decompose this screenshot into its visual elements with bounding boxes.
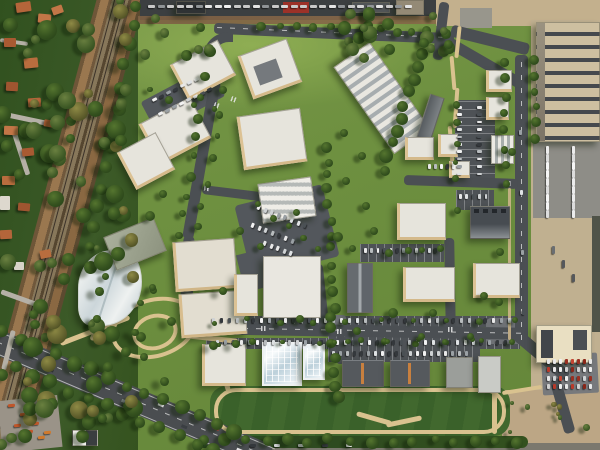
street-cars-south-car [304, 340, 307, 345]
woodland-canopy [3, 18, 17, 32]
east-road-trees [500, 58, 508, 66]
tree [296, 315, 304, 323]
north-strip-trucks-car [177, 5, 184, 8]
nw-slope-trees [181, 50, 192, 61]
field-divider-path [492, 390, 497, 434]
grid-cars-car [451, 351, 454, 356]
street-trees-s [345, 339, 351, 345]
south-treeline [325, 322, 336, 333]
north-strip-trucks-car [376, 5, 383, 8]
north-strip-trucks-car [234, 5, 241, 8]
woodland-canopy [111, 247, 124, 260]
mid-row-cars-car [428, 248, 431, 253]
plant-building-rooftop-units [470, 206, 510, 239]
nw-slope-trees [194, 45, 203, 54]
woodland-canopy [23, 337, 43, 357]
street-trees-n [212, 321, 217, 326]
south-road-cars-car [250, 444, 256, 447]
sw-lawn-trees [160, 377, 169, 386]
street-cars-south-car [392, 340, 395, 345]
ne-grove [382, 18, 394, 30]
central-treeline [321, 183, 332, 194]
street-cars-north-car [292, 318, 295, 323]
woodland-canopy [23, 48, 33, 58]
visitor-cars-3-car [559, 376, 562, 381]
lot-a-islands [212, 106, 218, 112]
street-cars-south-car [288, 340, 291, 345]
ne-lot-trees [453, 119, 460, 126]
grid-cars-car [444, 351, 447, 356]
woodland-canopy [108, 207, 120, 219]
avenue-trees-west [191, 132, 200, 141]
tree [495, 298, 503, 306]
ne-diagonal-treeline [380, 166, 390, 176]
woodland-canopy [26, 122, 43, 139]
street-cars-south-car [272, 340, 275, 345]
visitor-cars-1-car [571, 359, 574, 364]
east-row-cars-car [459, 194, 462, 199]
street-cars-south-car [488, 340, 491, 345]
street-cars-north-car [388, 318, 391, 323]
street-cars-north-car [468, 318, 471, 323]
highway-verge-north [175, 400, 190, 415]
sw-lawn-trees [103, 362, 113, 372]
hedge-trees [322, 433, 332, 443]
aerial-business-park-render [0, 0, 600, 450]
street-cars-north-car [364, 318, 367, 323]
street-cars-south-car [368, 340, 371, 345]
south-treeline [325, 312, 336, 323]
visitor-cars-1-car [577, 359, 580, 364]
north-strip-trucks-car [291, 5, 298, 8]
north-road-trees [393, 28, 402, 37]
visitor-cars-4-car [559, 384, 562, 389]
tree [353, 327, 361, 335]
tree [257, 243, 264, 250]
street-cars-north-car [348, 318, 351, 323]
street-cars-north-car [492, 318, 495, 323]
tree [358, 152, 366, 160]
railside-trees [96, 184, 107, 195]
woodland-canopy [47, 191, 64, 208]
street-trees-n [310, 320, 315, 325]
north-strip-trucks-car [196, 5, 203, 8]
grid-cars-car [353, 351, 356, 356]
tree [467, 333, 474, 340]
visitor-cars-3-car [553, 376, 556, 381]
house-roof [4, 126, 18, 135]
highway-verge-north [122, 382, 132, 392]
yard-trucks-2-car [572, 146, 575, 154]
highway-verge-south [206, 443, 220, 450]
boulevard-cars-car [520, 190, 523, 195]
grid-cars-car [416, 351, 419, 356]
tree [480, 292, 488, 300]
ne-diagonal-treeline [397, 101, 408, 112]
ne-lot-cars-2-car [477, 113, 482, 116]
street-cars-north-car [236, 318, 239, 323]
grid-cars-car [395, 351, 398, 356]
woodland-canopy [116, 98, 127, 109]
highway-verge-south [135, 417, 145, 427]
highway-verge-north [157, 393, 169, 405]
street-cars-north-car [284, 318, 287, 323]
visitor-cars-2-car [553, 367, 556, 372]
gate-grove [419, 38, 429, 48]
logistics-office [536, 325, 592, 363]
apron-trucks-car [562, 260, 565, 268]
ne-diagonal-treeline [379, 149, 392, 162]
complex-edge-trees [529, 55, 539, 65]
avenue-trees-east [219, 86, 227, 94]
north-strip-trucks-car [243, 5, 250, 8]
tree [362, 202, 370, 210]
south-road-cars-car [274, 444, 280, 447]
se-scrub [551, 402, 556, 407]
highway-verge-north [101, 370, 116, 385]
yard-trucks-1-car [546, 194, 549, 202]
street-cars-north-car [396, 318, 399, 323]
street-cars-south-car [496, 340, 499, 345]
gate-grove [440, 27, 448, 35]
tree [349, 245, 356, 252]
north-road-trees [408, 28, 415, 35]
logistics-mega-warehouse [536, 22, 600, 142]
unit-gray-light [478, 356, 501, 393]
ne-lot-cars-2-car [477, 128, 482, 131]
north-strip-trucks-car [224, 5, 231, 8]
woodland-canopy [70, 401, 88, 419]
street-cars-north-car [220, 318, 223, 323]
street-cars-north-car [228, 318, 231, 323]
courtyard-islands [270, 215, 277, 222]
office-mid-1 [397, 203, 446, 240]
north-strip-trucks-car [300, 5, 307, 8]
tree [429, 309, 437, 317]
visitor-cars-1-car [547, 359, 550, 364]
railside-trees [87, 221, 99, 233]
street-trees-s [317, 341, 322, 346]
truck-yard [533, 142, 600, 218]
woodland-canopy [42, 99, 53, 110]
house-roof [18, 202, 31, 211]
north-strip-trucks-car [338, 5, 345, 8]
avenue-trees-west [197, 94, 204, 101]
yard-trucks-1-car [546, 170, 549, 178]
yard-trucks-2-car [572, 186, 575, 194]
hedge-trees [366, 437, 379, 450]
avenue-trees-west [200, 72, 209, 81]
ne-grove [384, 44, 395, 55]
street-cars-south-car [352, 340, 355, 345]
woodland-canopy [127, 271, 139, 283]
street-cars-north-car [252, 318, 255, 323]
ne-diagonal-treeline [403, 85, 415, 97]
street-trees-s [249, 338, 256, 345]
sw-lawn-trees [95, 287, 104, 296]
north-strip-trucks-car [348, 5, 355, 8]
tree [388, 308, 398, 318]
gate-pavement [460, 8, 492, 28]
avenue-trees-west [186, 172, 196, 182]
house-roof [6, 82, 18, 92]
yard-trucks-2-car [572, 202, 575, 210]
fan-garden-trees [102, 273, 109, 280]
complex-edge-trees [529, 72, 539, 82]
gate-grove [444, 40, 453, 49]
visitor-cars-4-car [577, 384, 580, 389]
ne-lot-cars-1-car [457, 150, 462, 153]
yard-trucks-2-car [572, 178, 575, 186]
woodland-canopy [88, 101, 103, 116]
visitor-cars-2-car [571, 367, 574, 372]
mid-row-cars-car [415, 248, 418, 253]
street-cars-north-car [404, 318, 407, 323]
ne-lot-trees [453, 101, 461, 109]
tree [293, 209, 300, 216]
yard-trucks-2-car [572, 170, 575, 178]
sw-lawn-trees [121, 347, 131, 357]
grid-cars-car [437, 351, 440, 356]
south-treeline [328, 367, 339, 378]
visitor-cars-2-car [589, 367, 592, 372]
north-strip-trucks-car [148, 5, 155, 8]
north-road-trees [293, 22, 301, 30]
north-strip-trucks-car [262, 5, 269, 8]
highway-verge-north [139, 388, 149, 398]
east-road-trees [502, 161, 510, 169]
central-treeline [327, 262, 335, 270]
central-treeline [323, 170, 331, 178]
tree [236, 227, 244, 235]
visitor-cars-1-car [559, 359, 562, 364]
street-cars-south-car [504, 340, 507, 345]
ne-diagonal-treeline [396, 113, 408, 125]
central-treeline [321, 142, 332, 153]
grid-cars-car [409, 351, 412, 356]
north-strip-trucks-car [205, 5, 212, 8]
north-strip-trucks-car [357, 5, 364, 8]
north-strip-trucks-car [167, 5, 174, 8]
highway-verge-south [84, 393, 94, 403]
north-road-trees [256, 22, 265, 31]
woodland-canopy [115, 135, 127, 147]
apron-trucks-car [552, 246, 555, 254]
ne-row-cars-car [440, 164, 443, 169]
highway-verge-north [194, 409, 206, 421]
street-trees-s [280, 340, 285, 345]
hall-pitched-roof [347, 263, 373, 313]
east-row-cars-car [478, 194, 481, 199]
ne-lot-cars-2-car [477, 136, 482, 139]
tree [454, 207, 461, 214]
office-south-1 [202, 344, 246, 386]
highway-verge-south [10, 361, 21, 372]
grid-cars-car [367, 351, 370, 356]
courtyard-islands [286, 223, 292, 229]
lot-a-islands [191, 102, 197, 108]
visitor-cars-1-car [589, 359, 592, 364]
fan-garden-trees [137, 300, 144, 307]
visitor-cars-1-car [583, 359, 586, 364]
avenue-trees-east [205, 181, 211, 187]
visitor-cars-3-car [589, 376, 592, 381]
ne-lot-cars-1-car [457, 128, 462, 131]
ne-lot-cars-1-car [457, 113, 462, 116]
visitor-cars-3-car [577, 376, 580, 381]
street-cars-south-car [408, 340, 411, 345]
ne-lot-cars-1-car [457, 165, 462, 168]
se-scrub [525, 404, 530, 409]
street-cars-north-car [460, 318, 463, 323]
north-strip-trucks-car [329, 5, 336, 8]
street-trees-n [342, 319, 347, 324]
visitor-cars-4-car [583, 384, 586, 389]
ne-row-cars-car [446, 164, 449, 169]
house-roof [2, 176, 15, 185]
north-strip-trucks-car [272, 5, 279, 8]
visitor-cars-4-car [589, 384, 592, 389]
yard-trucks-2-car [572, 162, 575, 170]
workshop-gray [446, 357, 473, 388]
house-roof [22, 147, 35, 156]
visitor-cars-4-car [547, 384, 550, 389]
grid-cars-car [402, 351, 405, 356]
south-treeline [330, 353, 341, 364]
visitor-cars-2-car [559, 367, 562, 372]
north-strip-trucks-car [186, 5, 193, 8]
central-treeline [325, 159, 333, 167]
railside-trees [117, 58, 128, 69]
office-central-3 [263, 256, 321, 318]
street-cars-north-car [484, 318, 487, 323]
east-road-trees [503, 180, 510, 187]
street-cars-south-car [256, 340, 259, 345]
woodland-canopy [84, 89, 92, 97]
grid-lot-trees [332, 340, 337, 345]
woodland-canopy [82, 23, 95, 36]
north-strip-trucks-car [405, 5, 412, 8]
grid-cars-car [388, 351, 391, 356]
street-trees-n [379, 317, 384, 322]
east-row-cars-car [485, 194, 488, 199]
complex-edge-trees [531, 88, 538, 95]
ne-lot-trees [452, 175, 459, 182]
avenue-trees-west [183, 194, 190, 201]
house-roof [24, 57, 39, 68]
ne-lot-cars-2-car [477, 106, 482, 109]
lane-dash-east [521, 60, 522, 340]
woodland-canopy [125, 395, 138, 408]
yard-trucks-1-car [546, 162, 549, 170]
tree [496, 248, 504, 256]
woodland-canopy [1, 140, 13, 152]
tree [333, 232, 343, 242]
woodland-canopy [49, 145, 66, 162]
house-roof [0, 230, 12, 240]
ne-lot-cars-2-car [477, 143, 482, 146]
ne-row-cars-car [434, 164, 437, 169]
grid-cars-car [423, 351, 426, 356]
yard-trucks-1-car [546, 154, 549, 162]
glass-atrium-small [303, 344, 325, 380]
hedge-trees [389, 438, 399, 448]
tree [418, 333, 425, 340]
highway-verge-north [226, 424, 241, 439]
street-cars-north-car [372, 318, 375, 323]
grid-cars-car [374, 351, 377, 356]
tree [508, 148, 516, 156]
ne-lot-cars-2-car [477, 173, 482, 176]
grid-cars-car [430, 351, 433, 356]
grid-cars-car [465, 351, 468, 356]
avenue-trees-west [191, 152, 198, 159]
ne-diagonal-treeline [412, 61, 424, 73]
grid-lot-trees [442, 339, 448, 345]
ne-lot-cars-2-car [477, 165, 482, 168]
avenue-trees-west [175, 232, 182, 239]
street-trees-n [476, 318, 483, 325]
grid-lot-trees [358, 337, 363, 342]
visitor-cars-2-car [577, 367, 580, 372]
visitor-cars-1-car [553, 359, 556, 364]
street-cars-south-car [264, 340, 267, 345]
north-strip-trucks-car [215, 5, 222, 8]
south-treeline [333, 391, 345, 403]
mid-row-trees [419, 247, 425, 253]
visitor-cars-2-car [583, 367, 586, 372]
street-cars-south-car [312, 340, 315, 345]
railside-trees [130, 1, 141, 12]
woodland-canopy [66, 134, 75, 143]
street-cars-north-car [436, 318, 439, 323]
boulevard-cars-car [522, 310, 525, 315]
highway-verge-south [192, 439, 203, 450]
woodland-canopy [76, 430, 89, 443]
highway-verge-north [84, 361, 99, 376]
visitor-cars-4-car [571, 384, 574, 389]
avenue-trees-west [193, 114, 203, 124]
woodland-canopy [6, 433, 17, 444]
street-cars-south-car [424, 340, 427, 345]
woodland-canopy [18, 429, 32, 443]
tree [340, 129, 348, 137]
visitor-cars-2-car [565, 367, 568, 372]
street-cars-south-car [296, 340, 299, 345]
woodland-canopy [76, 208, 91, 223]
hedge-trees [302, 438, 312, 448]
ne-lot-cars-1-car [457, 136, 462, 139]
apron-trucks-car [572, 274, 575, 282]
woodland-canopy [77, 34, 96, 53]
tree [385, 249, 393, 257]
woodland-canopy [98, 414, 107, 423]
visitor-cars-4-car [565, 384, 568, 389]
ne-grove [338, 21, 351, 34]
north-strip-trucks-car [395, 5, 402, 8]
yard-trucks-1-car [546, 210, 549, 218]
south-road-cars-car [322, 444, 328, 447]
street-cars-south-car [464, 340, 467, 345]
street-cars-north-car [508, 318, 511, 323]
woodland-canopy [104, 326, 120, 342]
street-cars-north-car [316, 318, 319, 323]
street-trees-n [444, 318, 449, 323]
grid-cars-car [346, 351, 349, 356]
north-strip-trucks-car [319, 5, 326, 8]
visitor-cars-2-car [547, 367, 550, 372]
office-north-2 [237, 108, 308, 170]
